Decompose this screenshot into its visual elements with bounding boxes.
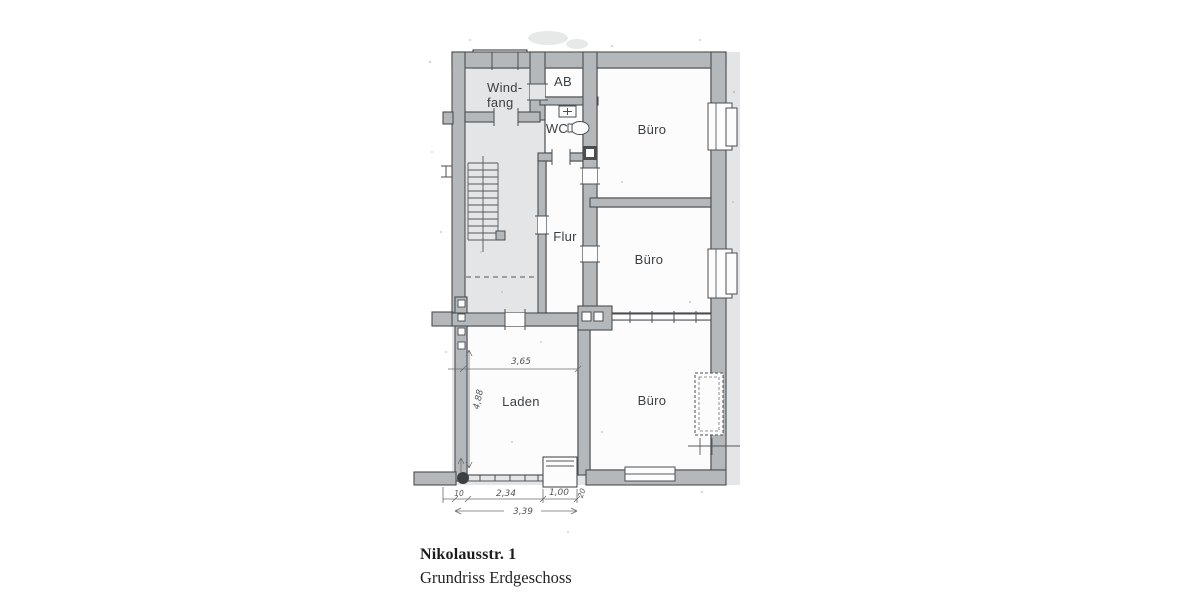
- stair-newel: [496, 231, 505, 240]
- duct-inner: [586, 149, 594, 157]
- label-laden: Laden: [502, 394, 540, 409]
- dim-pier-right: 20: [576, 487, 588, 499]
- wall-southwest-band: [414, 472, 456, 485]
- door-windfang-hall: [494, 111, 518, 123]
- west-window-pane-1: [458, 300, 465, 307]
- caption-block: Nikolausstr. 1 Grundriss Erdgeschoss: [420, 546, 572, 588]
- label-windfang-line2: fang: [487, 95, 514, 110]
- dim-front-total: 3,39: [513, 507, 533, 517]
- door-windfang-ab: [530, 84, 545, 100]
- label-flur: Flur: [553, 229, 577, 244]
- label-buero-mid: Büro: [635, 252, 664, 267]
- dim-pier-left: 10: [454, 489, 464, 498]
- wall-stub-nw: [443, 112, 453, 124]
- wall-buero-top-south: [590, 198, 711, 207]
- toilet-tank: [568, 124, 572, 132]
- wall-laden-divider: [578, 313, 590, 475]
- entry-recess: [543, 457, 577, 487]
- dim-laden-width: 3,65: [511, 357, 531, 367]
- door-hall-laden: [505, 313, 525, 326]
- caption-title: Nikolausstr. 1: [420, 546, 572, 564]
- door-wc: [552, 152, 570, 162]
- toilet-symbol: [571, 122, 589, 135]
- label-windfang-line1: Wind-: [487, 80, 522, 95]
- dim-shop-window: 2,34: [496, 489, 516, 499]
- west-window-pane-4: [458, 342, 465, 349]
- door-flur-hall: [538, 216, 546, 234]
- label-wc: WC: [546, 121, 568, 136]
- window-sill-top: [726, 108, 737, 146]
- corner-column: [457, 472, 469, 484]
- caption-subtitle: Grundriss Erdgeschoss: [420, 568, 572, 588]
- pier-void-2: [594, 312, 603, 321]
- wall-stub-west: [432, 312, 453, 326]
- window-sill-mid: [726, 253, 737, 294]
- pier-void-1: [582, 312, 591, 321]
- label-buero-top: Büro: [638, 122, 667, 137]
- wall-west-upper: [452, 52, 465, 325]
- west-window-pane-3: [458, 328, 465, 335]
- label-buero-bottom: Büro: [638, 393, 667, 408]
- west-window-pane-2: [458, 314, 465, 321]
- wall-flur-west: [538, 161, 546, 313]
- door-flur-buero-top: [583, 168, 597, 184]
- floorplan-image: 3,65 4,88 10 2,34 1,00 20 3,39 Wind- fan…: [0, 0, 1200, 600]
- dim-entry-width: 1,00: [549, 488, 569, 498]
- door-flur-buero-mid: [583, 246, 597, 262]
- label-ab: AB: [554, 74, 572, 89]
- scan-artifacts: [528, 31, 588, 49]
